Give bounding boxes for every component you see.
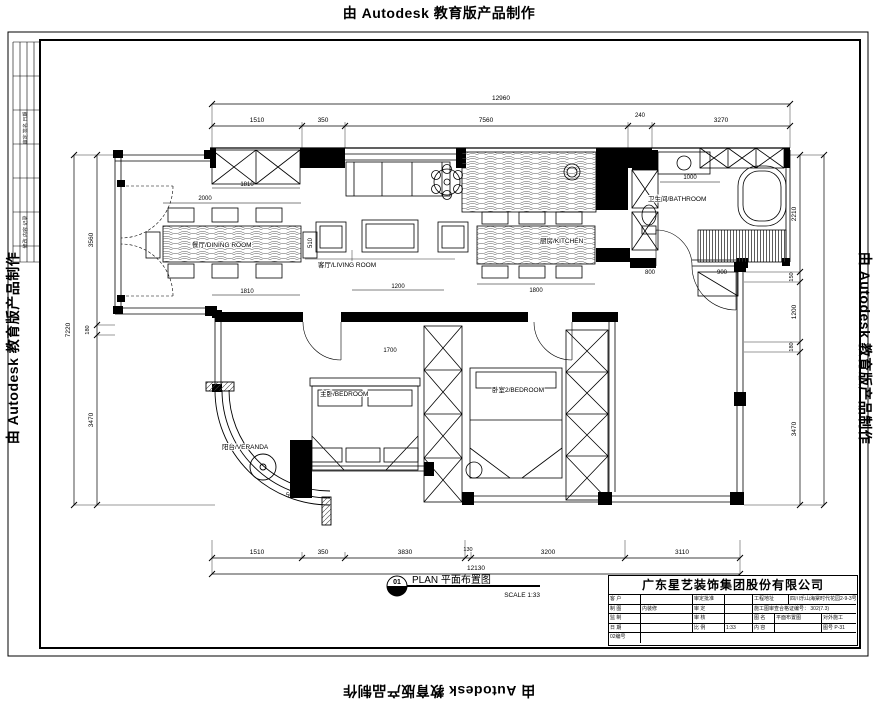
doors bbox=[117, 180, 736, 360]
svg-text:1800: 1800 bbox=[529, 288, 543, 294]
title-block: 广东星艺装饰集团股份有限公司 客 户 审定批准 工程地址 四川乐山海棠时代花园2… bbox=[608, 575, 858, 646]
svg-text:3470: 3470 bbox=[88, 412, 95, 427]
tb-value: 对外施工 bbox=[822, 614, 856, 624]
svg-text:1700: 1700 bbox=[383, 348, 397, 354]
revision-strip-note-1: 审定 签名 日期 bbox=[22, 112, 29, 145]
svg-text:1810: 1810 bbox=[240, 182, 254, 188]
tb-value bbox=[641, 614, 693, 624]
svg-text:350: 350 bbox=[318, 117, 329, 124]
svg-text:3560: 3560 bbox=[88, 232, 95, 247]
svg-text:180: 180 bbox=[85, 325, 91, 334]
svg-text:350: 350 bbox=[318, 549, 329, 556]
bed1 bbox=[312, 386, 418, 470]
svg-text:180: 180 bbox=[789, 342, 795, 351]
label-dining-room: 餐厅/DINING ROOM bbox=[192, 240, 252, 249]
svg-text:3200: 3200 bbox=[541, 549, 556, 556]
svg-text:510: 510 bbox=[308, 237, 314, 248]
label-bedroom1: 主卧/BEDROOM bbox=[320, 389, 368, 398]
label-bedroom2: 卧室2/BEDROOM bbox=[492, 385, 544, 394]
svg-text:900: 900 bbox=[717, 270, 728, 276]
tb-label: 客 户 bbox=[609, 595, 641, 605]
tb-label: 比 例 bbox=[693, 624, 725, 634]
tb-value bbox=[725, 605, 753, 615]
svg-text:1000: 1000 bbox=[683, 175, 697, 181]
tb-value bbox=[775, 624, 822, 634]
svg-text:130: 130 bbox=[463, 547, 472, 553]
label-kitchen: 厨房/KITCHEN bbox=[540, 236, 584, 245]
tb-value bbox=[725, 595, 753, 605]
bathroom-door bbox=[656, 230, 692, 266]
top-closet bbox=[700, 148, 784, 168]
tb-value bbox=[641, 624, 693, 634]
tb-value bbox=[641, 633, 856, 643]
tb-value: 平面布置图 bbox=[775, 614, 822, 624]
tb-label: 制 图 bbox=[609, 605, 641, 615]
svg-text:3470: 3470 bbox=[791, 421, 798, 436]
svg-text:2000: 2000 bbox=[198, 196, 212, 202]
living-room-set bbox=[316, 162, 468, 252]
svg-text:240: 240 bbox=[635, 113, 646, 119]
tb-value: 四川乐山海棠时代花园2-9-3号 bbox=[789, 595, 856, 605]
tb-value: 内装修 bbox=[641, 605, 693, 615]
tb-value: 1:33 bbox=[725, 624, 753, 634]
svg-text:12960: 12960 bbox=[492, 95, 510, 102]
flower-table bbox=[432, 165, 463, 200]
fridge bbox=[632, 212, 658, 250]
interior-dimension-labels: 1810 2000 510 1810 1200 1700 1800 1000 8… bbox=[198, 175, 727, 499]
company-name: 广东星艺装饰集团股份有限公司 bbox=[609, 576, 857, 595]
bedroom1-door bbox=[303, 322, 341, 360]
tb-label: 图 名 bbox=[753, 614, 775, 624]
bedroom2-furniture bbox=[466, 368, 562, 478]
plan-scale-text: SCALE 1:33 bbox=[504, 592, 540, 599]
plan-title-marker: 01 PLAN 平面布置图 SCALE 1:33 bbox=[387, 574, 540, 599]
tb-label: 工程地址 bbox=[753, 595, 789, 605]
tb-value bbox=[641, 595, 693, 605]
tb-value: 图号 P-31 bbox=[822, 624, 856, 634]
tb-label: 02编号 bbox=[609, 633, 641, 643]
tb-value: 施工图审查合格证编号： 302(7.3) bbox=[753, 605, 856, 615]
entry-cabinet bbox=[212, 150, 300, 184]
svg-text:12130: 12130 bbox=[467, 565, 485, 572]
svg-text:2210: 2210 bbox=[791, 206, 798, 221]
tb-label: 审 核 bbox=[693, 614, 725, 624]
tb-label: 日 期 bbox=[609, 624, 641, 634]
label-bathroom: 卫生间/BATHROOM bbox=[648, 194, 706, 203]
svg-text:01: 01 bbox=[393, 579, 401, 586]
svg-text:1200: 1200 bbox=[391, 284, 405, 290]
svg-text:7220: 7220 bbox=[65, 322, 72, 337]
drawing-sheet: { "stamps": { "text": "由 Autodesk 教育版产品制… bbox=[0, 0, 878, 702]
revision-strip-note-2: 修改 内容 记录 bbox=[22, 216, 29, 249]
bathtub bbox=[738, 166, 786, 226]
dimension-labels: 12960 1510 350 7560 240 3270 1510 350 38… bbox=[65, 95, 798, 572]
tb-label: 审定批准 bbox=[693, 595, 725, 605]
label-veranda: 阳台/VERANDA bbox=[222, 442, 269, 451]
svg-text:3110: 3110 bbox=[675, 549, 689, 556]
svg-text:800: 800 bbox=[645, 270, 656, 276]
svg-text:7560: 7560 bbox=[479, 117, 494, 124]
svg-text:3830: 3830 bbox=[398, 549, 413, 556]
svg-text:1510: 1510 bbox=[250, 549, 265, 556]
svg-text:1200: 1200 bbox=[791, 304, 798, 319]
dimension-lines bbox=[71, 101, 827, 577]
bedroom-wardrobes bbox=[424, 326, 608, 502]
bed2 bbox=[470, 368, 562, 478]
shower-mat bbox=[698, 230, 786, 262]
tb-label: 监 制 bbox=[609, 614, 641, 624]
svg-text:1510: 1510 bbox=[250, 117, 265, 124]
svg-text:1810: 1810 bbox=[240, 289, 254, 295]
tb-label: 审 定 bbox=[693, 605, 725, 615]
plan-title-text: PLAN 平面布置图 bbox=[412, 574, 491, 586]
sheet-border bbox=[8, 32, 868, 656]
label-living-room: 客厅/LIVING ROOM bbox=[318, 260, 376, 269]
tb-value bbox=[725, 614, 753, 624]
svg-text:150: 150 bbox=[789, 272, 795, 281]
svg-text:3270: 3270 bbox=[714, 117, 729, 124]
tb-label: 内 容 bbox=[753, 624, 775, 634]
